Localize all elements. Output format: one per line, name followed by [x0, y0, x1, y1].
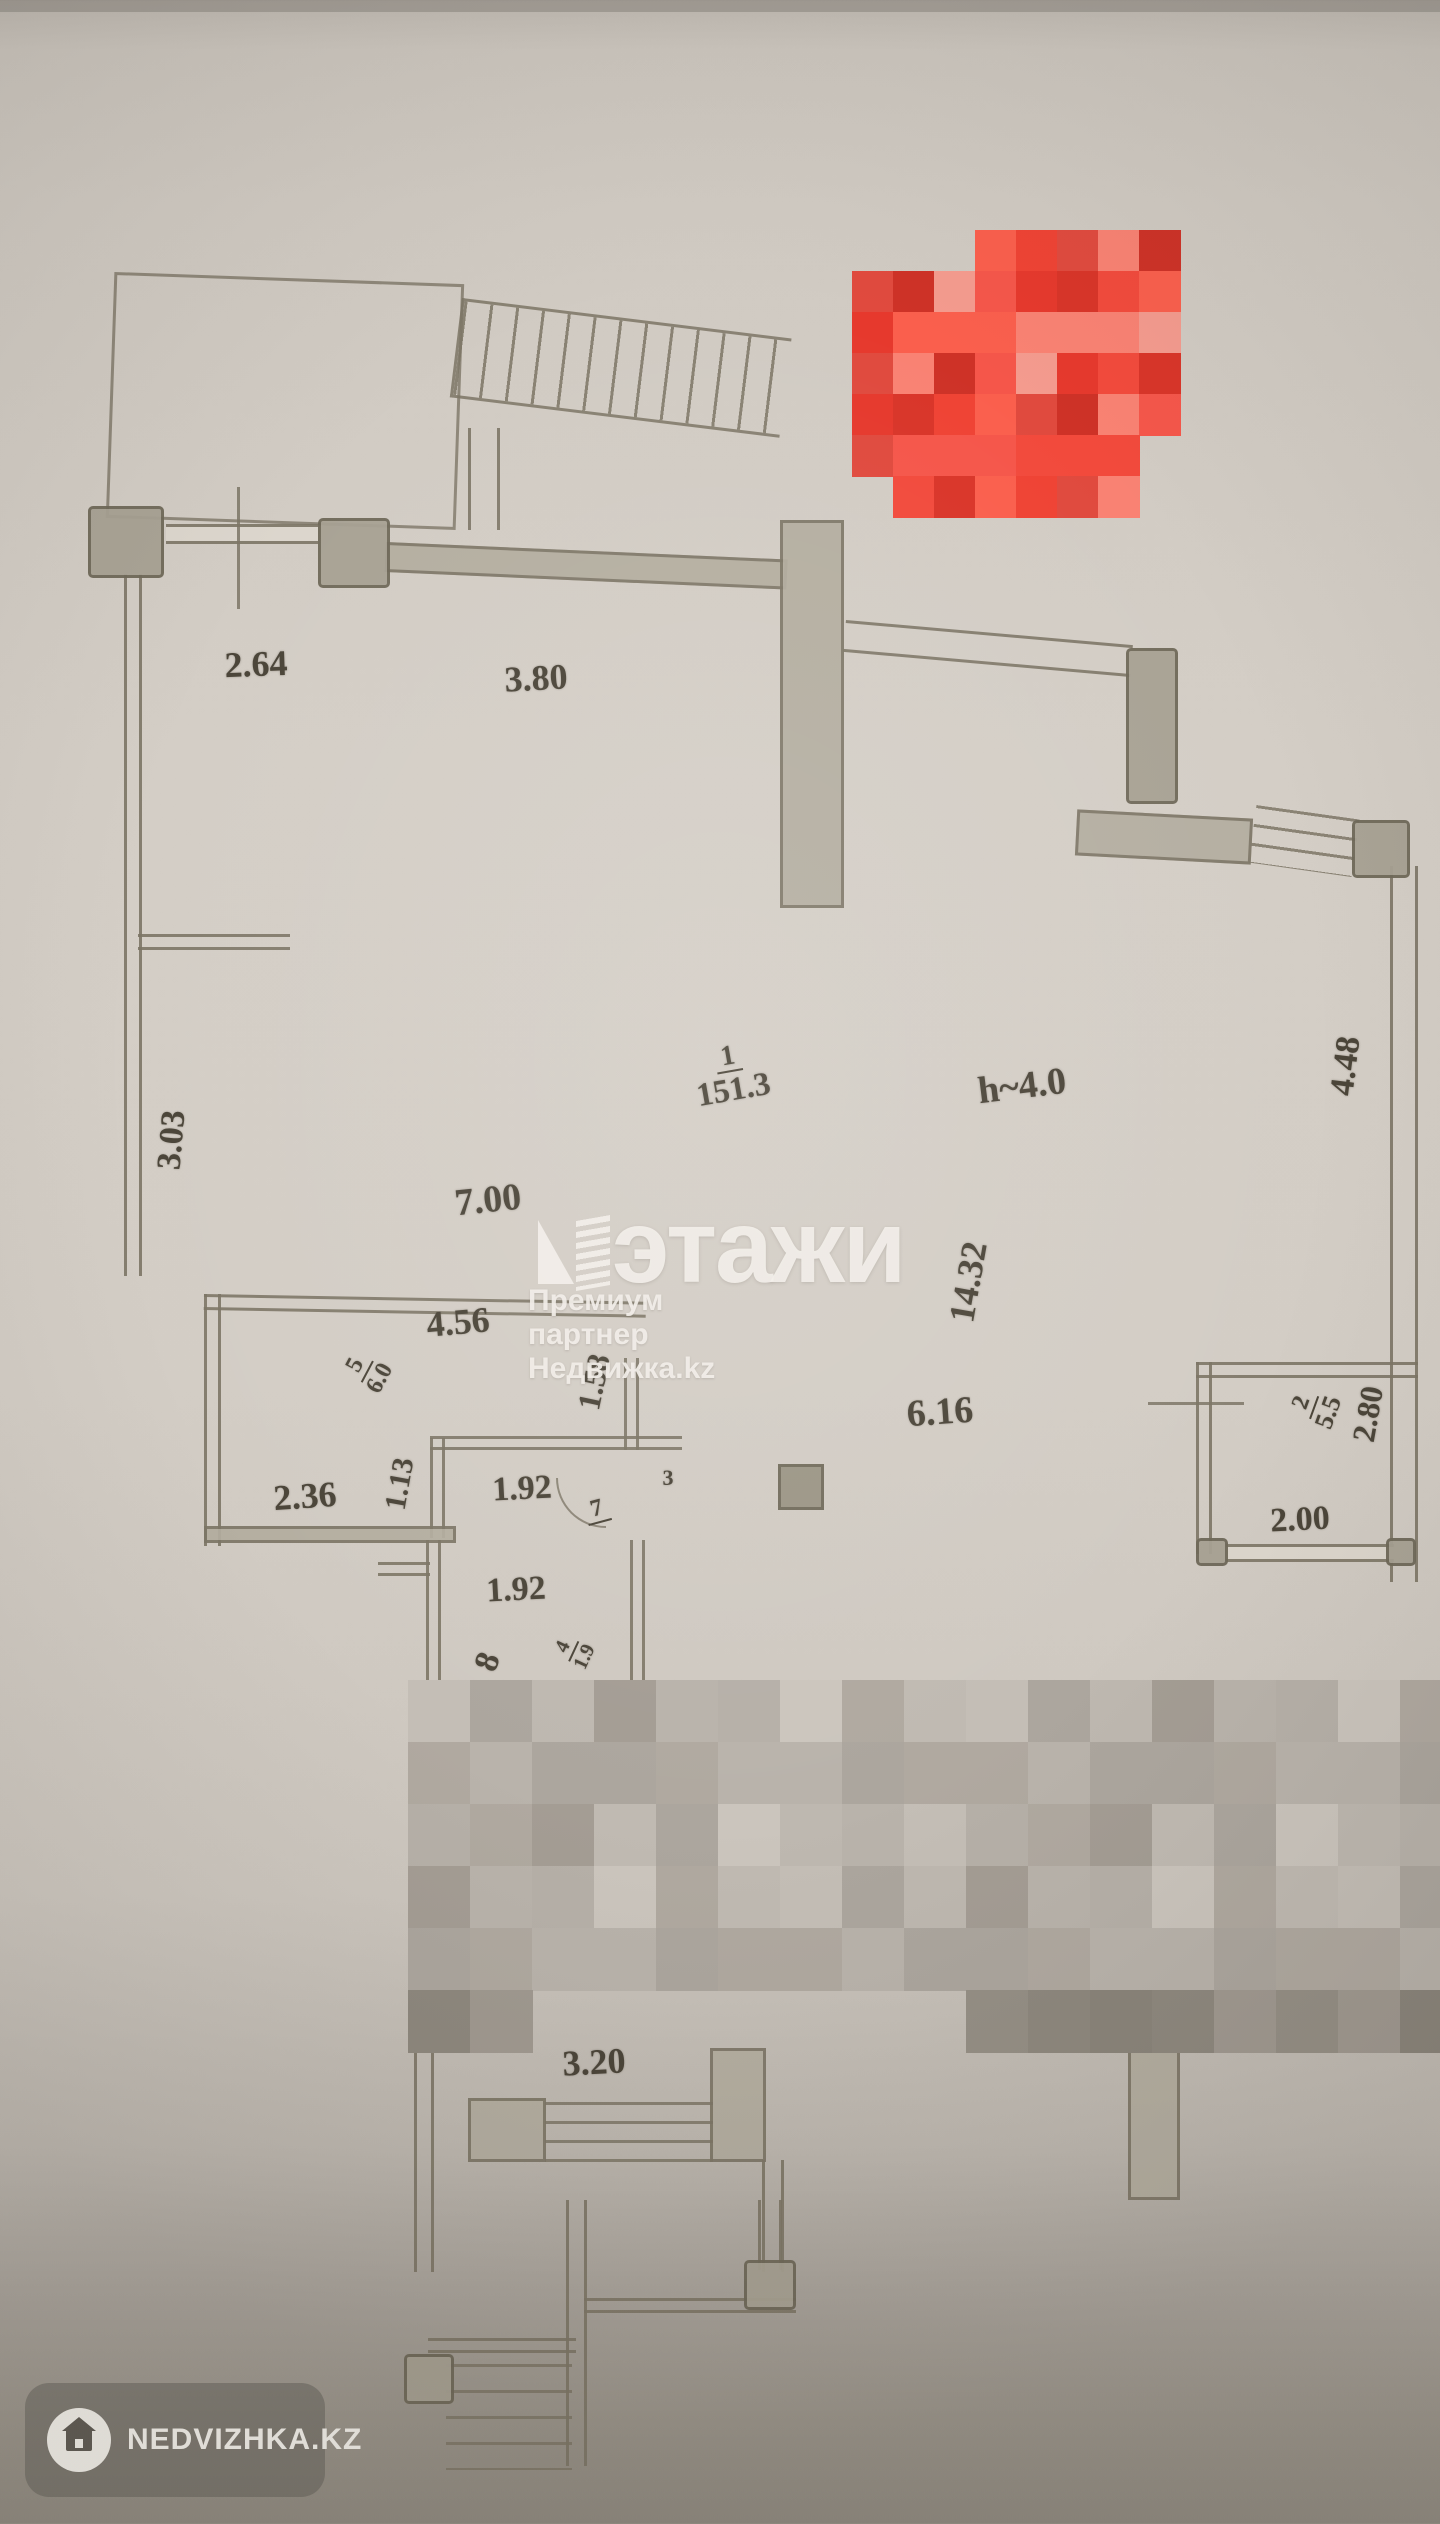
wall-pier [1386, 1538, 1416, 1566]
room2-left-wall [1196, 1362, 1212, 1554]
watermark-floors-icon [576, 1215, 610, 1291]
wall-pier [318, 518, 390, 588]
bottom-wall-corner-left [468, 2098, 546, 2162]
gray-blur-block [1400, 1804, 1440, 1867]
badge-label: NEDVIZHKA.KZ [127, 2423, 362, 2457]
gray-blur-block [718, 1742, 781, 1805]
gray-blur-block [1028, 1866, 1091, 1929]
gray-blur-block [470, 1804, 533, 1867]
gray-blur-block [842, 1804, 905, 1867]
gray-blur-block [532, 1928, 595, 1991]
red-blur-block [975, 435, 1017, 477]
gray-blur-block [780, 1866, 843, 1929]
gray-blur-block [1090, 1804, 1153, 1867]
gray-blur-block [1338, 1990, 1401, 2053]
gray-blur-block [718, 1928, 781, 1991]
dimension-label: 3.80 [503, 655, 568, 700]
gray-blur-block [1152, 1804, 1215, 1867]
dimension-label: 2.36 [272, 1473, 338, 1519]
wall-segment-top [385, 542, 788, 590]
structural-column [778, 1464, 824, 1510]
red-blur-block [893, 271, 935, 313]
watermark-subtitle: Премиум партнер Недвижка.kz [528, 1284, 715, 1386]
red-blur-block [1098, 312, 1140, 354]
gray-blur-block [1400, 1866, 1440, 1929]
red-blur-block [934, 271, 976, 313]
gray-blur-block [1400, 1990, 1440, 2053]
red-blur-block [975, 476, 1017, 518]
gray-blur-block [1152, 1990, 1215, 2053]
red-blur-block [975, 353, 1017, 395]
gray-blur-block [1338, 1866, 1401, 1929]
red-blur-block [1016, 230, 1058, 272]
gray-blur-block [1152, 1866, 1215, 1929]
gray-blur-block [842, 1680, 905, 1743]
dimension-tick [1148, 1402, 1244, 1405]
wall-pier [1126, 648, 1178, 804]
nedvizhka-badge: NEDVIZHKA.KZ [25, 2383, 325, 2497]
wall-column-right [780, 520, 844, 908]
room2-top-wall [1196, 1362, 1418, 1378]
room5-bottom-wall [204, 1526, 456, 1543]
red-blur-block [934, 312, 976, 354]
house-door-icon [75, 2439, 83, 2448]
red-blur-block [893, 394, 935, 436]
gray-blur-block [904, 1866, 967, 1929]
wall-double-slanted [843, 620, 1133, 677]
gray-blur-block [594, 1928, 657, 1991]
red-blur-block [893, 476, 935, 518]
terrace-outline-wall [106, 272, 464, 530]
wall-pier [744, 2260, 796, 2310]
red-blur-block [1139, 353, 1181, 395]
gray-blur-block [408, 1680, 471, 1743]
gray-blur-block [718, 1866, 781, 1929]
red-blur-block [1098, 230, 1140, 272]
bottom-landing-line [428, 2338, 576, 2353]
gray-blur-block [780, 1742, 843, 1805]
staircase-320 [545, 2102, 713, 2162]
gray-blur-block [1400, 1742, 1440, 1805]
dimension-label: 4.56 [425, 1298, 491, 1345]
gray-blur-block [532, 1742, 595, 1805]
gray-blur-block [966, 1680, 1029, 1743]
entry-steps-right [1248, 805, 1359, 877]
gray-blur-block [842, 1866, 905, 1929]
gray-blur-block [1214, 1680, 1277, 1743]
gray-blur-block [1028, 1742, 1091, 1805]
wall-pier [1352, 820, 1410, 878]
gray-blur-block [470, 1990, 533, 2053]
gray-blur-block [656, 1928, 719, 1991]
gray-blur-block [470, 1742, 533, 1805]
gray-blur-block [1090, 1866, 1153, 1929]
room-label: 25.5 [1284, 1383, 1348, 1433]
red-blur-block [1057, 394, 1099, 436]
gray-blur-block [532, 1866, 595, 1929]
floorplan-photo: 2.643.803.037.00h~4.04.4814.324.561.582.… [0, 0, 1440, 2524]
dimension-label: 1.13 [379, 1455, 422, 1513]
watermark-triangle-icon [538, 1220, 574, 1284]
red-blur-block [934, 394, 976, 436]
gray-blur-block [1028, 1990, 1091, 2053]
gray-blur-block [1214, 1990, 1277, 2053]
gray-blur-block [408, 1928, 471, 1991]
badge-circle [47, 2408, 111, 2472]
gray-blur-block [1152, 1742, 1215, 1805]
gray-blur-block [1152, 1680, 1215, 1743]
room-number: 1 [712, 1039, 743, 1074]
gray-blur-block [532, 1680, 595, 1743]
window-top-left [166, 524, 318, 544]
red-blur-block [975, 230, 1017, 272]
gray-blur-block [656, 1866, 719, 1929]
red-blur-block [975, 394, 1017, 436]
red-blur-block [1098, 476, 1140, 518]
photo-top-edge [0, 0, 1440, 12]
gray-blur-block [904, 1680, 967, 1743]
gray-blur-block [1214, 1804, 1277, 1867]
red-blur-block [1016, 476, 1058, 518]
dimension-label: 7.00 [453, 1175, 524, 1226]
gray-blur-block [904, 1742, 967, 1805]
gray-blur-block [1338, 1680, 1401, 1743]
red-blur-block [852, 435, 894, 477]
gray-blur-block [408, 1742, 471, 1805]
gray-blur-block [470, 1866, 533, 1929]
red-blur-block [893, 312, 935, 354]
red-blur-block [1057, 476, 1099, 518]
dimension-label: 3.20 [561, 2039, 626, 2084]
gray-blur-block [842, 1742, 905, 1805]
gray-blur-block [966, 1928, 1029, 1991]
red-blur-block [934, 435, 976, 477]
gray-blur-block [594, 1866, 657, 1929]
gray-blur-block [1090, 1990, 1153, 2053]
gray-blur-block [408, 1866, 471, 1929]
gray-blur-block [780, 1804, 843, 1867]
dimension-label: 14.32 [940, 1238, 995, 1325]
gray-blur-block [1338, 1928, 1401, 1991]
red-blur-block [1016, 271, 1058, 313]
dimension-label: 4.48 [1324, 1034, 1369, 1098]
red-blur-block [1016, 353, 1058, 395]
gray-blur-block [718, 1680, 781, 1743]
wall-under-stairs [468, 428, 500, 530]
gray-blur-block [408, 1804, 471, 1867]
dimension-label: h~4.0 [975, 1059, 1068, 1113]
dimension-label: 2.64 [224, 642, 288, 686]
gray-blur-block [1090, 1928, 1153, 1991]
gray-blur-block [470, 1680, 533, 1743]
gray-blur-block [1338, 1742, 1401, 1805]
bottom-wall-left [414, 2052, 434, 2272]
gray-blur-block [1152, 1928, 1215, 1991]
gray-blur-block [1276, 1680, 1339, 1743]
red-blur-block [1057, 353, 1099, 395]
bottom-wall-steps-right [566, 2200, 587, 2466]
room2-window [1226, 1544, 1394, 1562]
gray-blur-block [1276, 1866, 1339, 1929]
red-blur-block [1098, 353, 1140, 395]
red-blur-block [1057, 312, 1099, 354]
room7-left-wall [430, 1438, 445, 1538]
gray-blur-block [1276, 1928, 1339, 1991]
dimension-label: 3.03 [150, 1109, 193, 1172]
interior-wall-stub [138, 934, 290, 950]
red-blur-block [1057, 435, 1099, 477]
gray-blur-block [656, 1804, 719, 1867]
bottom-wall-far-right [1128, 2050, 1180, 2200]
gray-blur-block [1214, 1928, 1277, 1991]
gray-blur-block [1028, 1680, 1091, 1743]
room5-left-wall [204, 1294, 221, 1546]
gray-blur-block [470, 1928, 533, 1991]
room7-top-wall [430, 1436, 682, 1450]
house-icon [64, 2427, 94, 2453]
red-blur-block [1016, 394, 1058, 436]
red-blur-block [1057, 230, 1099, 272]
wall-pier [404, 2354, 454, 2404]
red-blur-block [852, 394, 894, 436]
gray-blur-block [656, 1680, 719, 1743]
red-blur-block [1139, 271, 1181, 313]
red-blur-block [1139, 230, 1181, 272]
gray-blur-block [1338, 1804, 1401, 1867]
boundary-wall-left [124, 574, 142, 1276]
gray-blur-block [842, 1928, 905, 1991]
gray-blur-block [1090, 1680, 1153, 1743]
gray-blur-block [656, 1742, 719, 1805]
etazhi-building-icon [538, 1210, 614, 1292]
gray-blur-block [1400, 1928, 1440, 1991]
gray-blur-block [1214, 1742, 1277, 1805]
red-blur-block [893, 353, 935, 395]
landing-slab-right [1075, 809, 1253, 864]
red-blur-block [1098, 435, 1140, 477]
dimension-tick [237, 487, 240, 609]
gray-blur-block [594, 1742, 657, 1805]
gray-blur-block [1276, 1804, 1339, 1867]
red-blur-block [1098, 271, 1140, 313]
red-blur-block [1057, 271, 1099, 313]
gray-blur-block [1214, 1866, 1277, 1929]
room4-top-stub [378, 1562, 430, 1576]
red-blur-block [893, 435, 935, 477]
room-label: 41.9 [548, 1631, 599, 1673]
gray-blur-block [594, 1680, 657, 1743]
dimension-label: 1.92 [485, 1569, 546, 1610]
gray-blur-block [1028, 1928, 1091, 1991]
red-blur-block [934, 476, 976, 518]
room4-right-wall [630, 1540, 645, 1690]
gray-blur-block [780, 1928, 843, 1991]
dimension-label: 1.92 [491, 1468, 552, 1509]
room-area: 151.3 [694, 1066, 773, 1115]
wall-pier [1196, 1538, 1228, 1566]
dimension-label: 2.80 [1345, 1383, 1391, 1445]
red-blur-block [1098, 394, 1140, 436]
gray-blur-block [780, 1680, 843, 1743]
staircase-bottom-exit [446, 2364, 572, 2470]
gray-blur-block [966, 1804, 1029, 1867]
gray-blur-block [904, 1928, 967, 1991]
gray-blur-block [1090, 1742, 1153, 1805]
red-blur-block [852, 353, 894, 395]
dimension-label: 8 [467, 1648, 509, 1677]
dimension-label: 6.16 [905, 1388, 974, 1437]
red-blur-block [1139, 394, 1181, 436]
gray-blur-block [408, 1990, 471, 2053]
red-blur-block [1139, 312, 1181, 354]
gray-blur-block [966, 1742, 1029, 1805]
red-blur-block [975, 271, 1017, 313]
gray-blur-block [966, 1990, 1029, 2053]
dimension-label: 3 [663, 1465, 674, 1491]
red-blur-block [975, 312, 1017, 354]
red-blur-block [1016, 435, 1058, 477]
room-label: 1151.3 [689, 1035, 774, 1115]
red-blur-block [852, 312, 894, 354]
bottom-wall-corner-right [710, 2048, 766, 2162]
staircase-top [450, 298, 792, 438]
gray-blur-block [532, 1804, 595, 1867]
room-label: 56.0 [337, 1346, 398, 1398]
boundary-wall-right [1390, 866, 1418, 1582]
red-blur-block [852, 271, 894, 313]
gray-blur-block [594, 1804, 657, 1867]
red-blur-block [934, 353, 976, 395]
wall-pier [88, 506, 164, 578]
dimension-label: 2.00 [1269, 1499, 1330, 1540]
gray-blur-block [1276, 1990, 1339, 2053]
gray-blur-block [718, 1804, 781, 1867]
gray-blur-block [1276, 1742, 1339, 1805]
gray-blur-block [904, 1804, 967, 1867]
red-blur-block [1016, 312, 1058, 354]
gray-blur-block [1028, 1804, 1091, 1867]
gray-blur-block [966, 1866, 1029, 1929]
gray-blur-block [1400, 1680, 1440, 1743]
